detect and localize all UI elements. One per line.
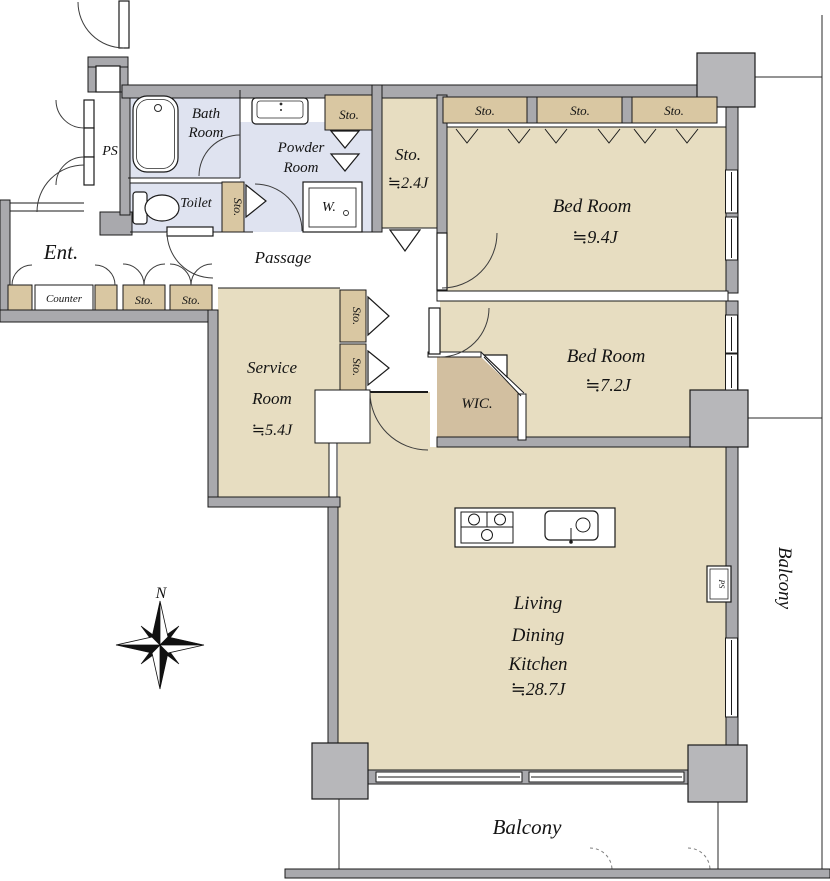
toilet-door-swing (167, 232, 213, 278)
toilet-label: Toilet (180, 196, 212, 211)
powder-label-2: Room (283, 160, 319, 176)
pillar-southeast (688, 745, 747, 802)
wic-label: WIC. (461, 396, 492, 412)
service-label-3: ≒5.4J (252, 422, 293, 439)
balcony-partition-right (688, 848, 710, 870)
floor-fills (130, 90, 726, 770)
passage-label: Passage (254, 248, 312, 267)
toilet-bowl (145, 195, 179, 221)
sto-label-powder: Sto. (339, 107, 359, 122)
entrance-cabinet-left (8, 285, 32, 310)
pillar-east-middle (690, 390, 748, 447)
service-closet-fold-door-1 (368, 297, 389, 335)
sto-label-bed2: Sto. (570, 103, 590, 118)
balcony-south-label: Balcony (493, 815, 562, 839)
sto-label-passage1: Sto. (135, 293, 153, 307)
bedroom94-label-2: ≒9.4J (572, 227, 619, 247)
storage24-label-2: ≒2.4J (388, 175, 429, 192)
compass-north-label: N (155, 585, 168, 602)
hall-column-box (315, 390, 370, 443)
meter-box (96, 66, 120, 92)
west-wall-ldk (328, 497, 338, 743)
powder-label-1: Powder (277, 140, 325, 156)
balcony-outer-wall (285, 869, 830, 878)
ldk-label-1: Living (513, 593, 563, 614)
bedroom72-label-2: ≒7.2J (585, 375, 632, 395)
ldk-label-3: Kitchen (507, 654, 567, 675)
service-label-2: Room (251, 389, 292, 408)
bath-label-1: Bath (192, 106, 220, 122)
entry-door-leaf (119, 1, 129, 48)
vanity-sink (252, 98, 308, 124)
sto-label-service2: Sto. (350, 358, 364, 376)
pillar-southwest (312, 743, 368, 799)
bedroom-divider-wall (437, 291, 728, 301)
ldk-floor (338, 392, 726, 770)
storage24-fold-door (390, 230, 420, 251)
balcony-east-label: Balcony (774, 547, 795, 610)
sto-label-bed3: Sto. (664, 103, 684, 118)
sto-label-service1: Sto. (350, 307, 364, 325)
ps-label: PS (101, 144, 118, 159)
entrance-label: Ent. (43, 240, 78, 264)
service-label-1: Service (247, 358, 297, 377)
ldk-label-2: Dining (511, 625, 565, 646)
sto-label-bed1: Sto. (475, 103, 495, 118)
ps-small-label: PS (717, 579, 726, 589)
bath-label-2: Room (188, 125, 224, 141)
bedroom94-label-1: Bed Room (553, 196, 632, 217)
bedroom94-door-leaf (437, 233, 447, 290)
sto-label-passage2: Sto. (182, 293, 200, 307)
counter-label: Counter (46, 293, 83, 305)
washer-label: W. (322, 200, 336, 215)
service-ldk-opening (329, 443, 337, 497)
floor-plan-page: Ent. Counter Passage PS Bath Room Powder… (0, 0, 830, 881)
toilet-door-leaf (167, 227, 213, 236)
bedroom72-label-1: Bed Room (567, 346, 646, 367)
north-wall (122, 85, 700, 98)
floor-plan-drawing: Ent. Counter Passage PS Bath Room Powder… (0, 0, 830, 881)
service-closet-fold-door-2 (368, 351, 389, 385)
bedroom72-door-leaf (429, 308, 440, 354)
sto-label-toilet-side: Sto. (231, 198, 245, 216)
entry-door-swing (78, 2, 124, 48)
storage24-label-1: Sto. (395, 145, 421, 164)
entrance-cabinet-right (95, 285, 117, 310)
compass-rose (116, 601, 204, 689)
ldk-label-4: ≒28.7J (511, 679, 567, 699)
front-door-swing (37, 165, 84, 212)
balcony-partition-left (590, 848, 612, 870)
